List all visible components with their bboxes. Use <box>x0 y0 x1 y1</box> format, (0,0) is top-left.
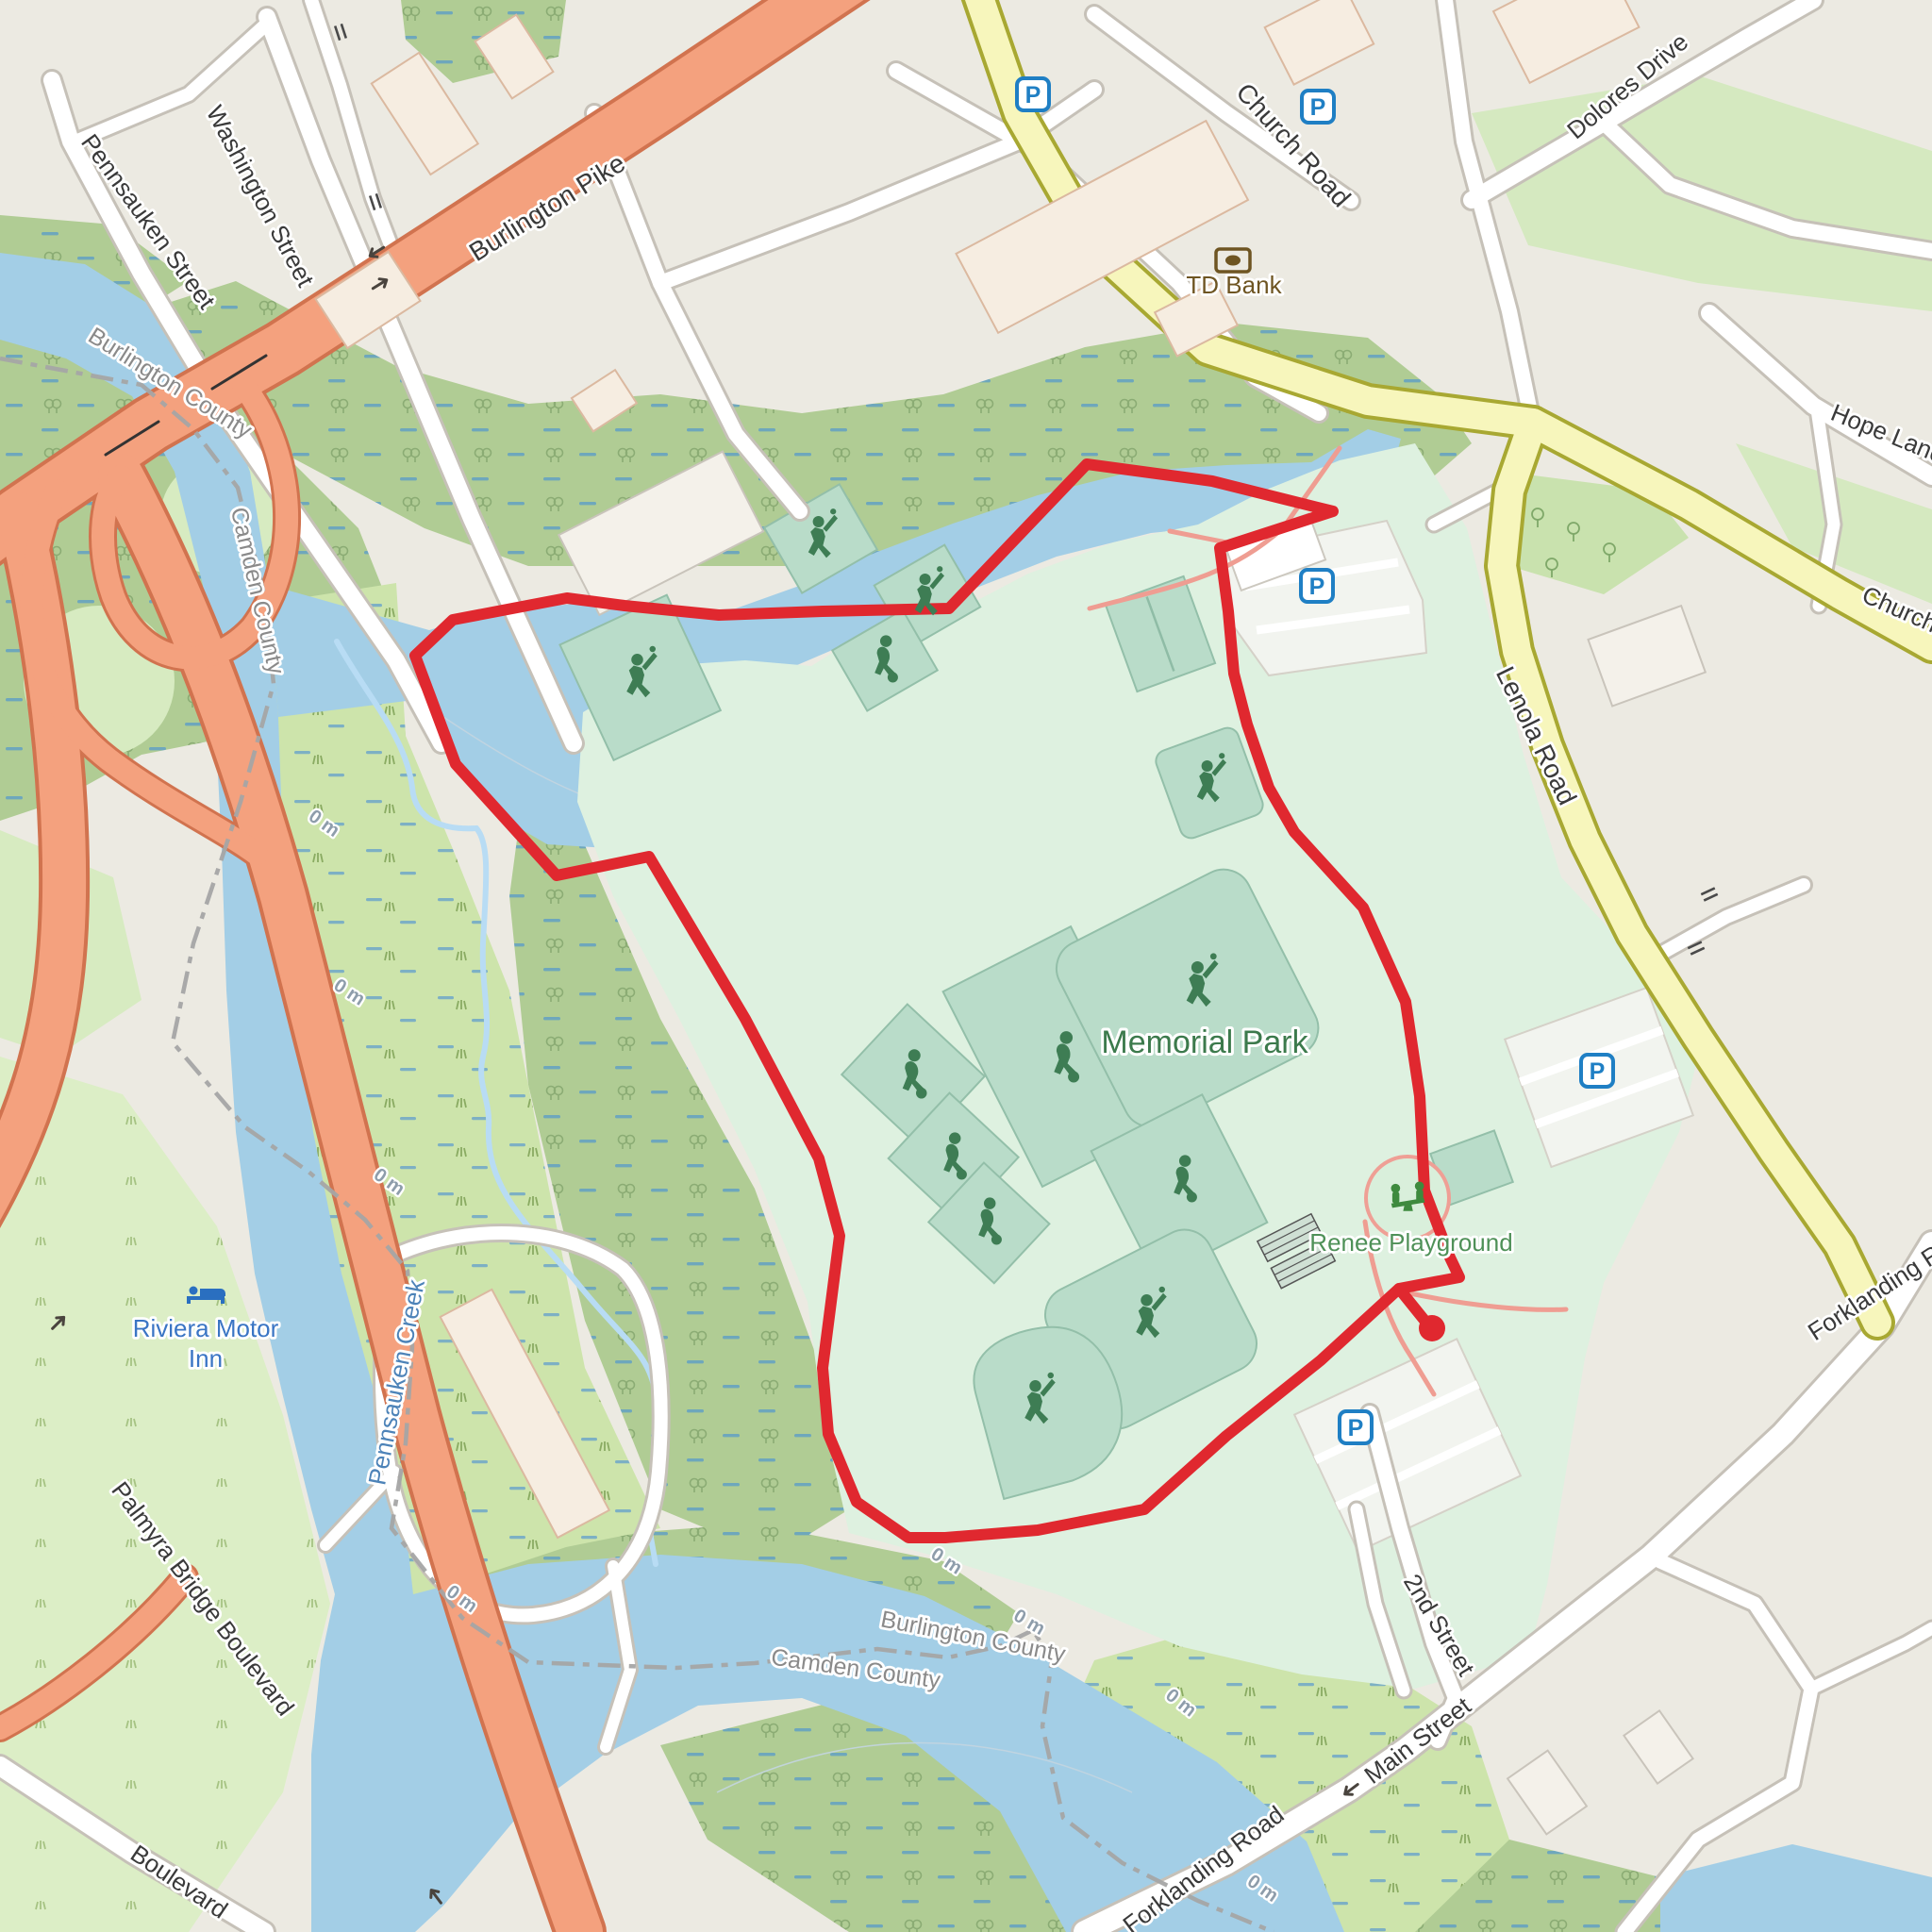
parking-icon <box>1302 91 1334 123</box>
parking-icon <box>1017 78 1049 110</box>
place-label-memorial-park: Memorial Park <box>1101 1024 1308 1060</box>
place-label-td-bank: TD Bank <box>1186 271 1282 299</box>
place-label-renee-playground: Renee Playground <box>1309 1228 1512 1257</box>
gps-track-endpoint <box>1419 1315 1445 1341</box>
parking-icon <box>1301 570 1333 602</box>
map-canvas[interactable]: P <box>0 0 1932 1932</box>
place-label-riviera-motor-inn: Riviera Motor <box>133 1314 279 1342</box>
parking-icon <box>1581 1055 1613 1087</box>
place-label-riviera-motor-inn-line2: Inn <box>189 1344 223 1373</box>
parking-icon <box>1340 1411 1372 1443</box>
